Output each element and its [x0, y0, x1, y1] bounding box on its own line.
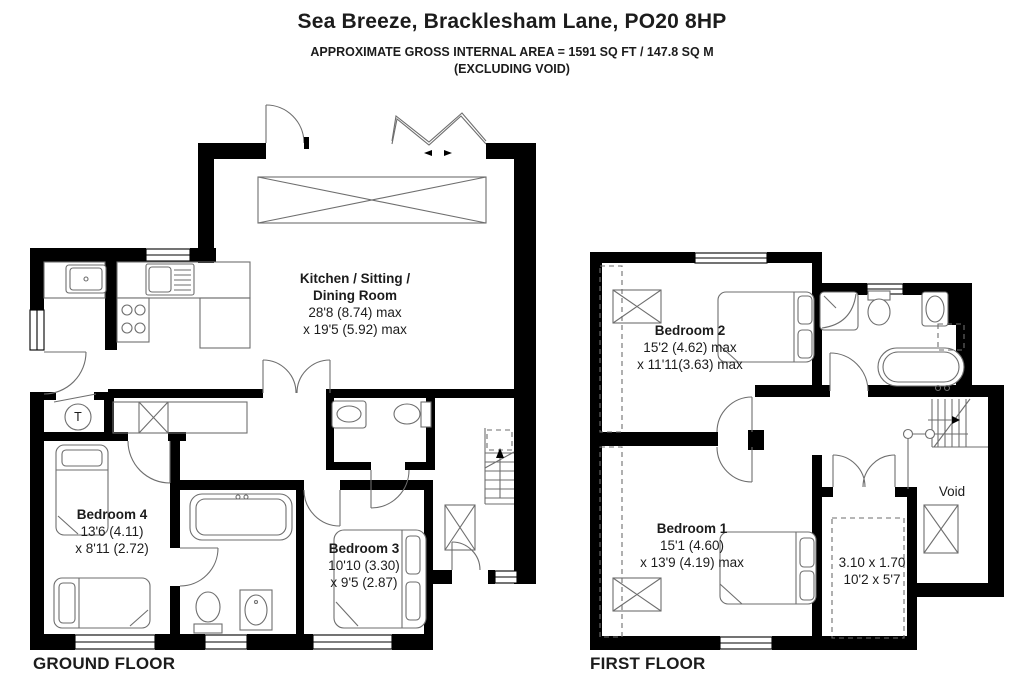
- bedroom1-label: Bedroom 1 15'1 (4.60) x 13'9 (4.19) max: [640, 520, 744, 571]
- ground-bathroom-fixtures: [190, 494, 292, 633]
- floorplan-page: Sea Breeze, Bracklesham Lane, PO20 8HP A…: [0, 0, 1024, 692]
- bedroom3-label: Bedroom 3 10'10 (3.30) x 9'5 (2.87): [328, 540, 400, 591]
- rooflight: [258, 177, 486, 223]
- tank-label: T: [74, 410, 82, 424]
- first-stairs: [904, 399, 989, 489]
- kitchen-label: Kitchen / Sitting / Dining Room 28'8 (8.…: [300, 270, 410, 338]
- ground-floor-plan: [30, 105, 536, 650]
- ground-floor-label: GROUND FLOOR: [33, 654, 175, 674]
- first-floor-label: FIRST FLOOR: [590, 654, 706, 674]
- first-floor-plan: [590, 252, 1004, 650]
- eaves-line: [600, 266, 622, 432]
- wc-fixtures: [332, 401, 431, 428]
- area-subtitle-note: (EXCLUDING VOID): [0, 62, 1024, 76]
- void-label: Void: [939, 484, 965, 499]
- first-bathroom-fixtures: [820, 291, 964, 391]
- ground-stairs: [445, 428, 514, 550]
- void-area: [924, 505, 958, 553]
- area-subtitle: APPROXIMATE GROSS INTERNAL AREA = 1591 S…: [0, 45, 1024, 59]
- kitchen-fixtures: [44, 262, 250, 348]
- eaves-line: [600, 447, 622, 637]
- ground-floor-walls: [30, 143, 536, 650]
- page-title: Sea Breeze, Bracklesham Lane, PO20 8HP: [0, 10, 1024, 34]
- bedroom4-label: Bedroom 4 13'6 (4.11) x 8'11 (2.72): [75, 506, 149, 557]
- hall-cupboards: [65, 402, 247, 433]
- first-floor-doors: [717, 353, 895, 487]
- store-label: 3.10 x 1.70 10'2 x 5'7: [839, 554, 906, 588]
- bedroom2-label: Bedroom 2 15'2 (4.62) max x 11'11(3.63) …: [637, 322, 743, 373]
- floorplan-drawing: [0, 0, 1024, 692]
